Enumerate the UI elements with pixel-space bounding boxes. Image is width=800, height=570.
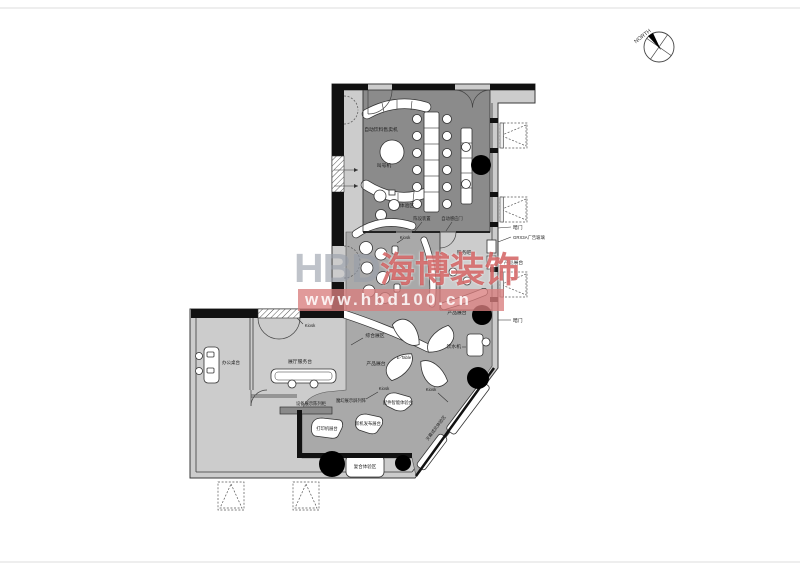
plan-label: 办公桌台 (222, 359, 240, 366)
plan-label: 服务吧 (457, 249, 472, 256)
plan-label: Kiosk (400, 235, 411, 240)
plan-label: 自动感应门 (441, 215, 462, 222)
plan-label: 复合体验区 (354, 463, 377, 470)
north-compass: NORTH (633, 26, 679, 68)
plan-label: 饮水机 (447, 343, 462, 350)
plan-label: 叫号机 (377, 162, 392, 169)
north-needle-icon (648, 33, 661, 50)
page: { "document": { "type": "interior floor … (0, 0, 800, 570)
plan-label: 展厅服务台 (288, 358, 312, 365)
plan-label: 产品展台 (366, 360, 385, 367)
plan-label: 综合展区 (365, 332, 384, 339)
plan-label: 暗门 (513, 317, 523, 324)
plan-label: 魔幻展示屏列阵 (336, 397, 367, 404)
plan-label: 新机发布展台 (355, 420, 381, 427)
plan-label: 配件智能体验台 (383, 399, 413, 406)
plan-label: 产品展台 (447, 309, 466, 316)
plan-label: E-Table (397, 355, 412, 360)
plan-label: GRX3A广告玻璃 (513, 234, 545, 241)
plan-label: Kiosk (426, 387, 437, 392)
plan-label: 打印机展台 (316, 425, 337, 432)
plan-label: Kiosk (379, 386, 390, 391)
floor-plan-canvas: 自动饮料售卖机叫号机体验区陈设装置自动感应门暗门GRX3A广告玻璃产品展台暗门服… (0, 0, 800, 570)
plan-label: 自动饮料售卖机 (364, 126, 398, 133)
plan-label: 设备展示陈列柜 (296, 400, 327, 407)
plan-label: 陈设装置 (413, 215, 431, 222)
plan-label: 体验区 (400, 202, 415, 209)
plan-label: Kiosk (305, 323, 316, 328)
plan-label: 产品展台 (504, 259, 523, 266)
plan-label: 暗门 (513, 224, 523, 231)
